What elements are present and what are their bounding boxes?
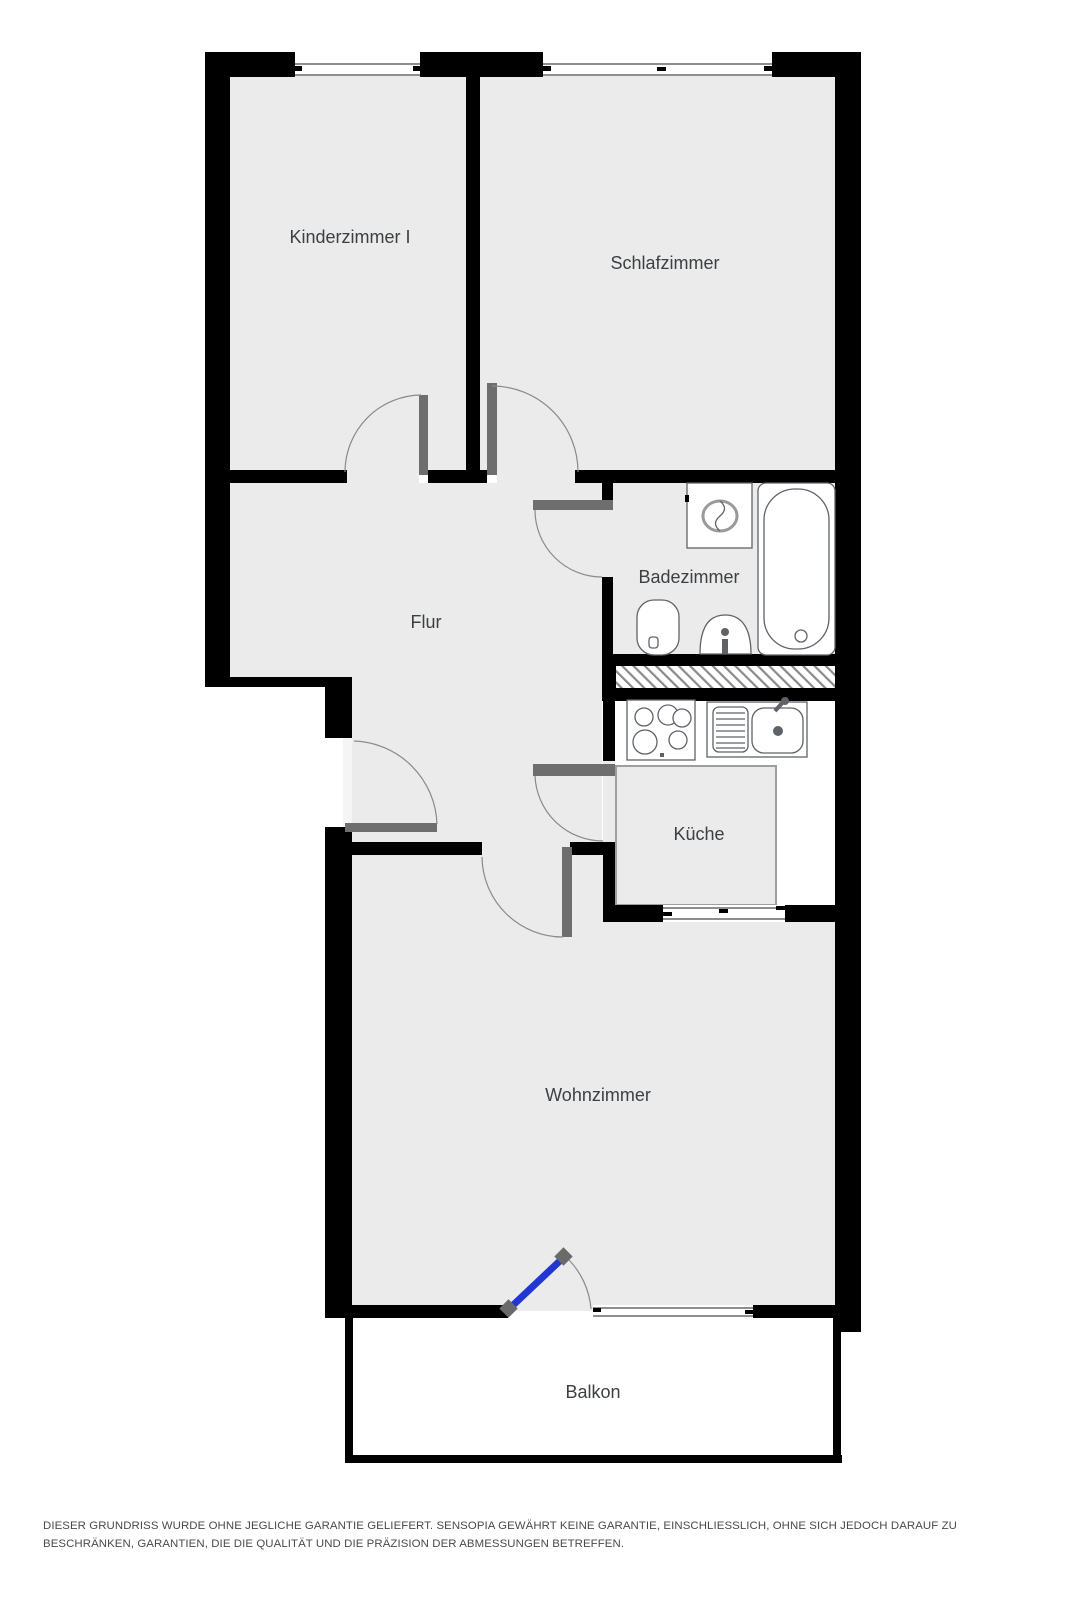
wall-segment xyxy=(602,654,861,666)
doorway-schlafzimmer xyxy=(497,470,575,483)
door-panel-kueche xyxy=(533,764,615,776)
room-label-schlafzimmer: Schlafzimmer xyxy=(610,253,719,273)
stove xyxy=(627,700,695,760)
room-floor-schlafzimmer xyxy=(479,76,835,470)
door-panel-schlafzimmer xyxy=(487,383,497,475)
window-tick xyxy=(719,909,728,913)
wall-segment xyxy=(602,666,616,688)
kitchen-sink xyxy=(707,697,807,757)
bathtub-inner xyxy=(764,489,829,649)
room-label-badezimmer: Badezimmer xyxy=(638,567,739,587)
room-label-balkon: Balkon xyxy=(565,1382,620,1402)
wall-segment xyxy=(205,52,230,687)
wall-segment xyxy=(466,52,480,483)
wall-segment xyxy=(325,687,352,738)
door-panel-wohnzimmer xyxy=(562,847,572,937)
toilet-flush xyxy=(649,637,658,648)
wall-segment xyxy=(230,470,347,483)
room-floor-wohnzimmer xyxy=(352,855,835,1305)
room-label-flur: Flur xyxy=(411,612,442,632)
balcony-wall-bottom xyxy=(345,1455,842,1463)
wall-segment xyxy=(420,52,543,77)
wall-segment xyxy=(835,52,861,1332)
balcony-wall-right xyxy=(833,1318,841,1463)
wall-segment xyxy=(575,470,861,483)
wall-segment xyxy=(602,483,613,500)
washing-machine-tick xyxy=(685,495,689,502)
disclaimer-text: DIESER GRUNDRISS WURDE OHNE JEGLICHE GAR… xyxy=(43,1518,1049,1553)
wall-segment xyxy=(205,677,352,687)
wall-segment xyxy=(570,842,615,855)
wall-segment xyxy=(602,688,861,701)
bathtub xyxy=(758,483,835,655)
entry-threshold-strip xyxy=(343,738,352,827)
room-label-kueche: Küche xyxy=(673,824,724,844)
wall-segment xyxy=(325,1305,508,1318)
stove-burner xyxy=(633,730,657,754)
window-tick xyxy=(593,1308,601,1312)
wall-segment xyxy=(345,842,482,855)
floor-plan: Kinderzimmer I Schlafzimmer Flur Badezim… xyxy=(0,0,1067,1600)
room-label-kinderzimmer: Kinderzimmer I xyxy=(289,227,410,247)
room-floor-kinderzimmer xyxy=(228,76,467,470)
wall-segment xyxy=(325,827,352,1318)
window-tick xyxy=(776,906,785,910)
sink-faucet-dot xyxy=(721,628,729,636)
wall-segment xyxy=(602,577,613,666)
sink-faucet-stem xyxy=(722,639,728,654)
kitchen-sink-drain xyxy=(773,726,783,736)
toilet xyxy=(637,600,679,655)
door-panel-entry xyxy=(345,823,437,832)
doorway-wohnzimmer xyxy=(482,842,570,855)
stove-burner xyxy=(673,709,691,727)
room-floor-flur xyxy=(230,483,602,842)
doorway-balkon xyxy=(508,1305,593,1311)
bathtub-drain xyxy=(795,630,807,642)
window-tick xyxy=(413,66,420,71)
stove-burner xyxy=(669,731,687,749)
wall-segment xyxy=(753,1305,861,1318)
kitchen-sink-drainboard xyxy=(713,707,748,752)
window-tick xyxy=(745,1310,753,1314)
balcony-wall-left xyxy=(345,1318,353,1458)
doorway-kinderzimmer xyxy=(347,470,419,483)
window-tick xyxy=(764,66,772,71)
wall-segment xyxy=(603,905,663,922)
door-panel-kinderzimmer xyxy=(419,395,428,475)
washing-machine xyxy=(685,483,752,548)
window-tick xyxy=(543,66,551,71)
room-label-wohnzimmer: Wohnzimmer xyxy=(545,1085,651,1105)
window-tick xyxy=(295,66,302,71)
stove-knob xyxy=(660,753,664,757)
doorway-badezimmer xyxy=(602,500,613,577)
shaft-hatch xyxy=(616,666,835,688)
window-tick xyxy=(657,67,666,71)
wall-segment xyxy=(603,701,615,761)
wall-segment xyxy=(428,470,487,483)
window-tick xyxy=(663,912,672,916)
stove-burner xyxy=(635,708,653,726)
door-panel-badezimmer xyxy=(533,500,613,510)
